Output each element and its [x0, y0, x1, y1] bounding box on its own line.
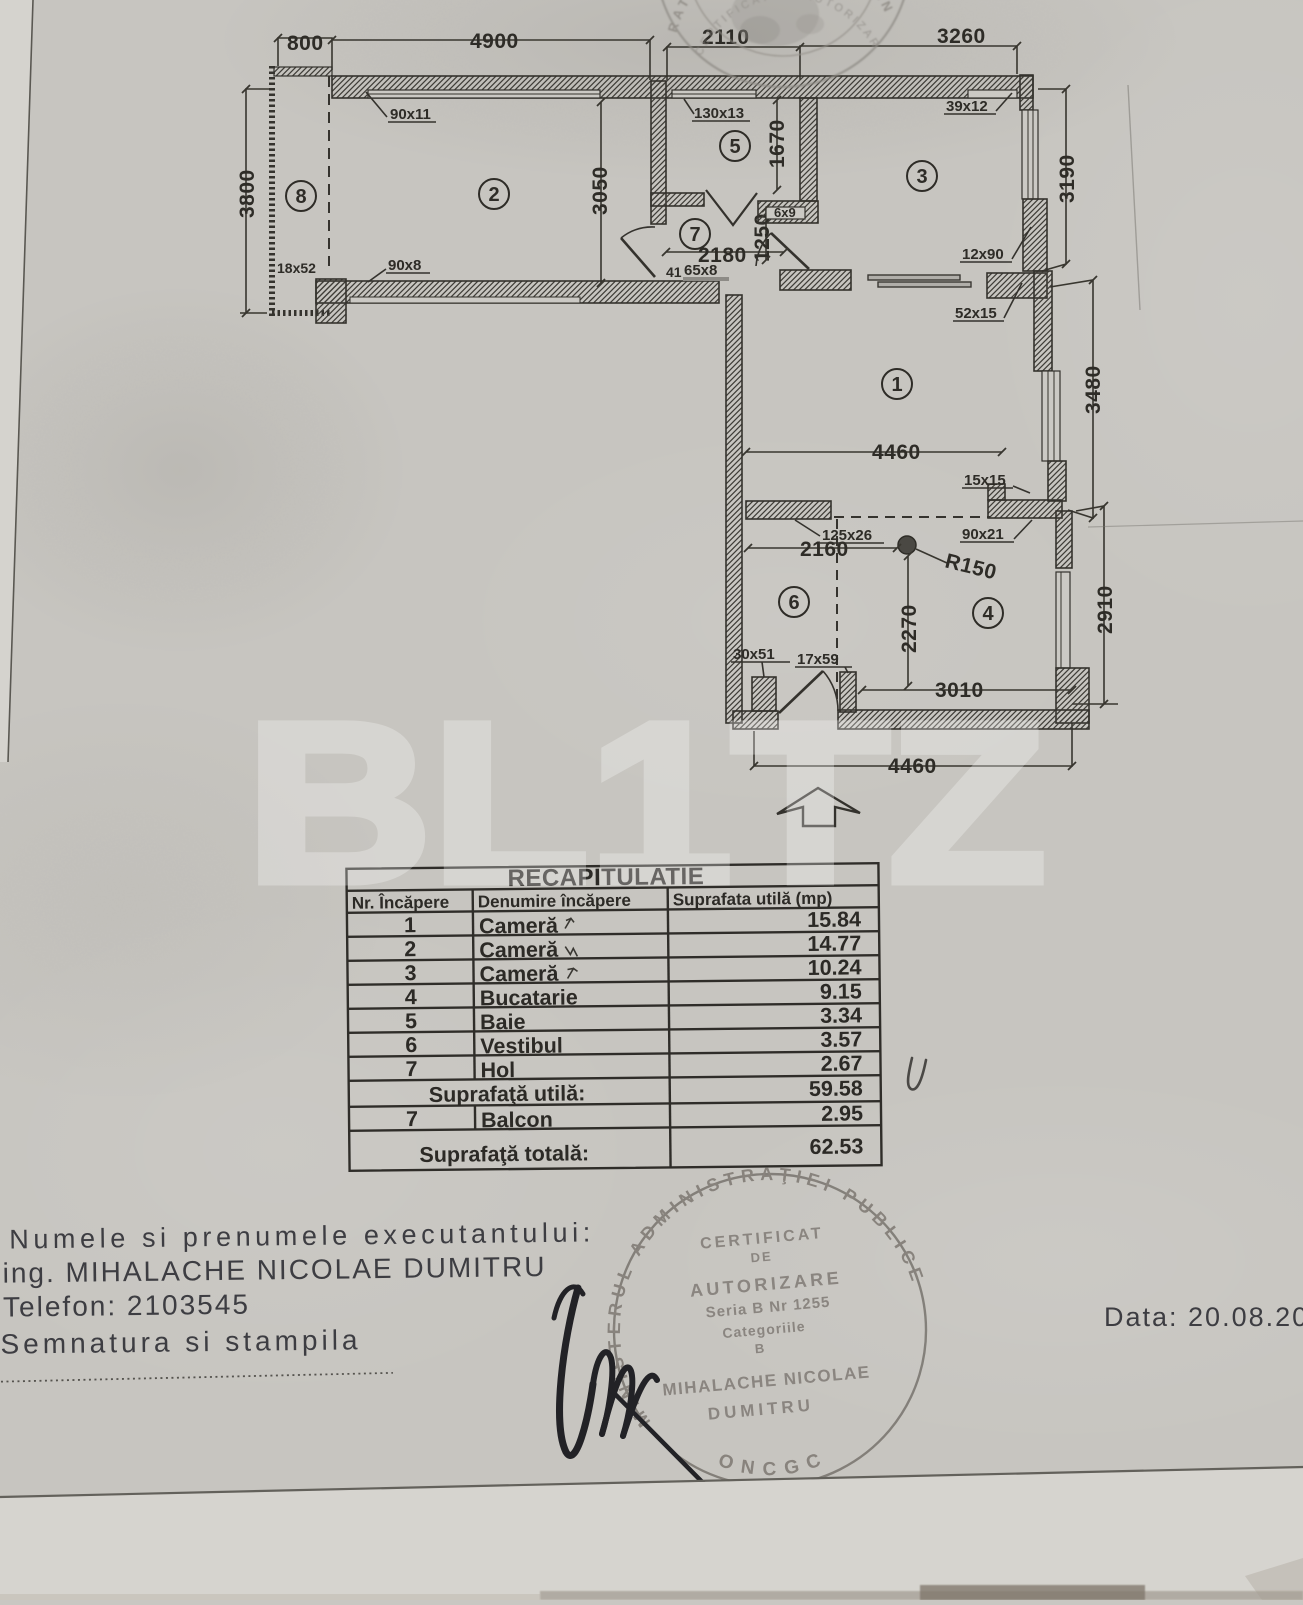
- svg-text:3: 3: [916, 166, 927, 188]
- svg-text:125x26: 125x26: [822, 527, 872, 544]
- svg-text:1670: 1670: [766, 119, 789, 168]
- svg-text:7: 7: [406, 1107, 418, 1131]
- svg-text:Telefon: 2103545: Telefon: 2103545: [3, 1289, 250, 1323]
- svg-text:59.58: 59.58: [809, 1076, 863, 1101]
- svg-text:12x90: 12x90: [962, 246, 1004, 263]
- svg-text:41: 41: [666, 264, 682, 280]
- svg-text:7: 7: [405, 1057, 417, 1081]
- svg-text:Hol: Hol: [480, 1058, 515, 1082]
- svg-text:5: 5: [405, 1009, 417, 1033]
- svg-text:6: 6: [405, 1033, 417, 1057]
- svg-text:BL1TZ: BL1TZ: [246, 677, 1046, 930]
- svg-text:Suprafaţă totală:: Suprafaţă totală:: [419, 1141, 589, 1167]
- svg-text:6x9: 6x9: [774, 205, 796, 220]
- svg-text:2: 2: [404, 937, 416, 961]
- svg-text:3.57: 3.57: [820, 1027, 862, 1051]
- svg-text:Vestibul: Vestibul: [480, 1034, 563, 1059]
- svg-text:18x52: 18x52: [277, 260, 316, 276]
- svg-text:15x15: 15x15: [964, 472, 1006, 489]
- svg-text:1: 1: [891, 374, 902, 396]
- svg-text:52x15: 52x15: [955, 305, 997, 322]
- svg-text:DE: DE: [750, 1249, 773, 1266]
- svg-text:3.34: 3.34: [820, 1003, 862, 1027]
- svg-text:62.53: 62.53: [809, 1134, 863, 1159]
- svg-text:Suprafaţă utilă:: Suprafaţă utilă:: [429, 1081, 586, 1107]
- svg-text:2910: 2910: [1094, 585, 1117, 634]
- svg-text:39x12: 39x12: [946, 98, 988, 115]
- svg-text:7: 7: [689, 224, 700, 246]
- svg-text:B: B: [754, 1341, 765, 1357]
- svg-text:6: 6: [788, 592, 799, 614]
- svg-text:3050: 3050: [589, 166, 612, 215]
- svg-text:10.24: 10.24: [808, 955, 862, 980]
- svg-text:Data: 20.08.20: Data: 20.08.20: [1104, 1302, 1303, 1332]
- svg-text:2: 2: [488, 184, 499, 206]
- svg-text:2.95: 2.95: [821, 1101, 863, 1125]
- svg-text:90x11: 90x11: [390, 106, 431, 123]
- svg-text:65x8: 65x8: [684, 262, 717, 279]
- svg-text:14.77: 14.77: [807, 931, 861, 956]
- svg-text:30x51: 30x51: [733, 646, 775, 663]
- svg-text:90x21: 90x21: [962, 526, 1004, 543]
- svg-text:Semnatura si stampila: Semnatura si stampila: [0, 1324, 361, 1359]
- svg-text:3480: 3480: [1082, 365, 1105, 414]
- svg-text:Cameră: Cameră: [479, 938, 559, 963]
- svg-text:4: 4: [982, 603, 994, 625]
- svg-text:3: 3: [404, 961, 416, 985]
- svg-text:2270: 2270: [898, 604, 921, 653]
- svg-text:90x8: 90x8: [388, 257, 421, 274]
- svg-text:3190: 3190: [1056, 154, 1079, 203]
- svg-text:2.67: 2.67: [821, 1051, 863, 1075]
- svg-text:5: 5: [729, 136, 740, 158]
- svg-text:9.15: 9.15: [820, 979, 862, 1003]
- svg-text:Cameră: Cameră: [479, 962, 559, 987]
- svg-text:Balcon: Balcon: [481, 1108, 553, 1133]
- svg-text:17x59: 17x59: [797, 651, 839, 668]
- svg-text:800: 800: [287, 32, 324, 55]
- svg-text:Baie: Baie: [480, 1010, 526, 1034]
- svg-text:8: 8: [295, 186, 306, 208]
- svg-text:3800: 3800: [236, 169, 259, 218]
- svg-text:4460: 4460: [872, 441, 921, 464]
- svg-text:130x13: 130x13: [694, 105, 744, 122]
- svg-text:4: 4: [405, 985, 417, 1009]
- svg-text:3260: 3260: [937, 25, 986, 48]
- svg-text:Bucatarie: Bucatarie: [480, 985, 578, 1010]
- svg-text:4900: 4900: [470, 30, 519, 53]
